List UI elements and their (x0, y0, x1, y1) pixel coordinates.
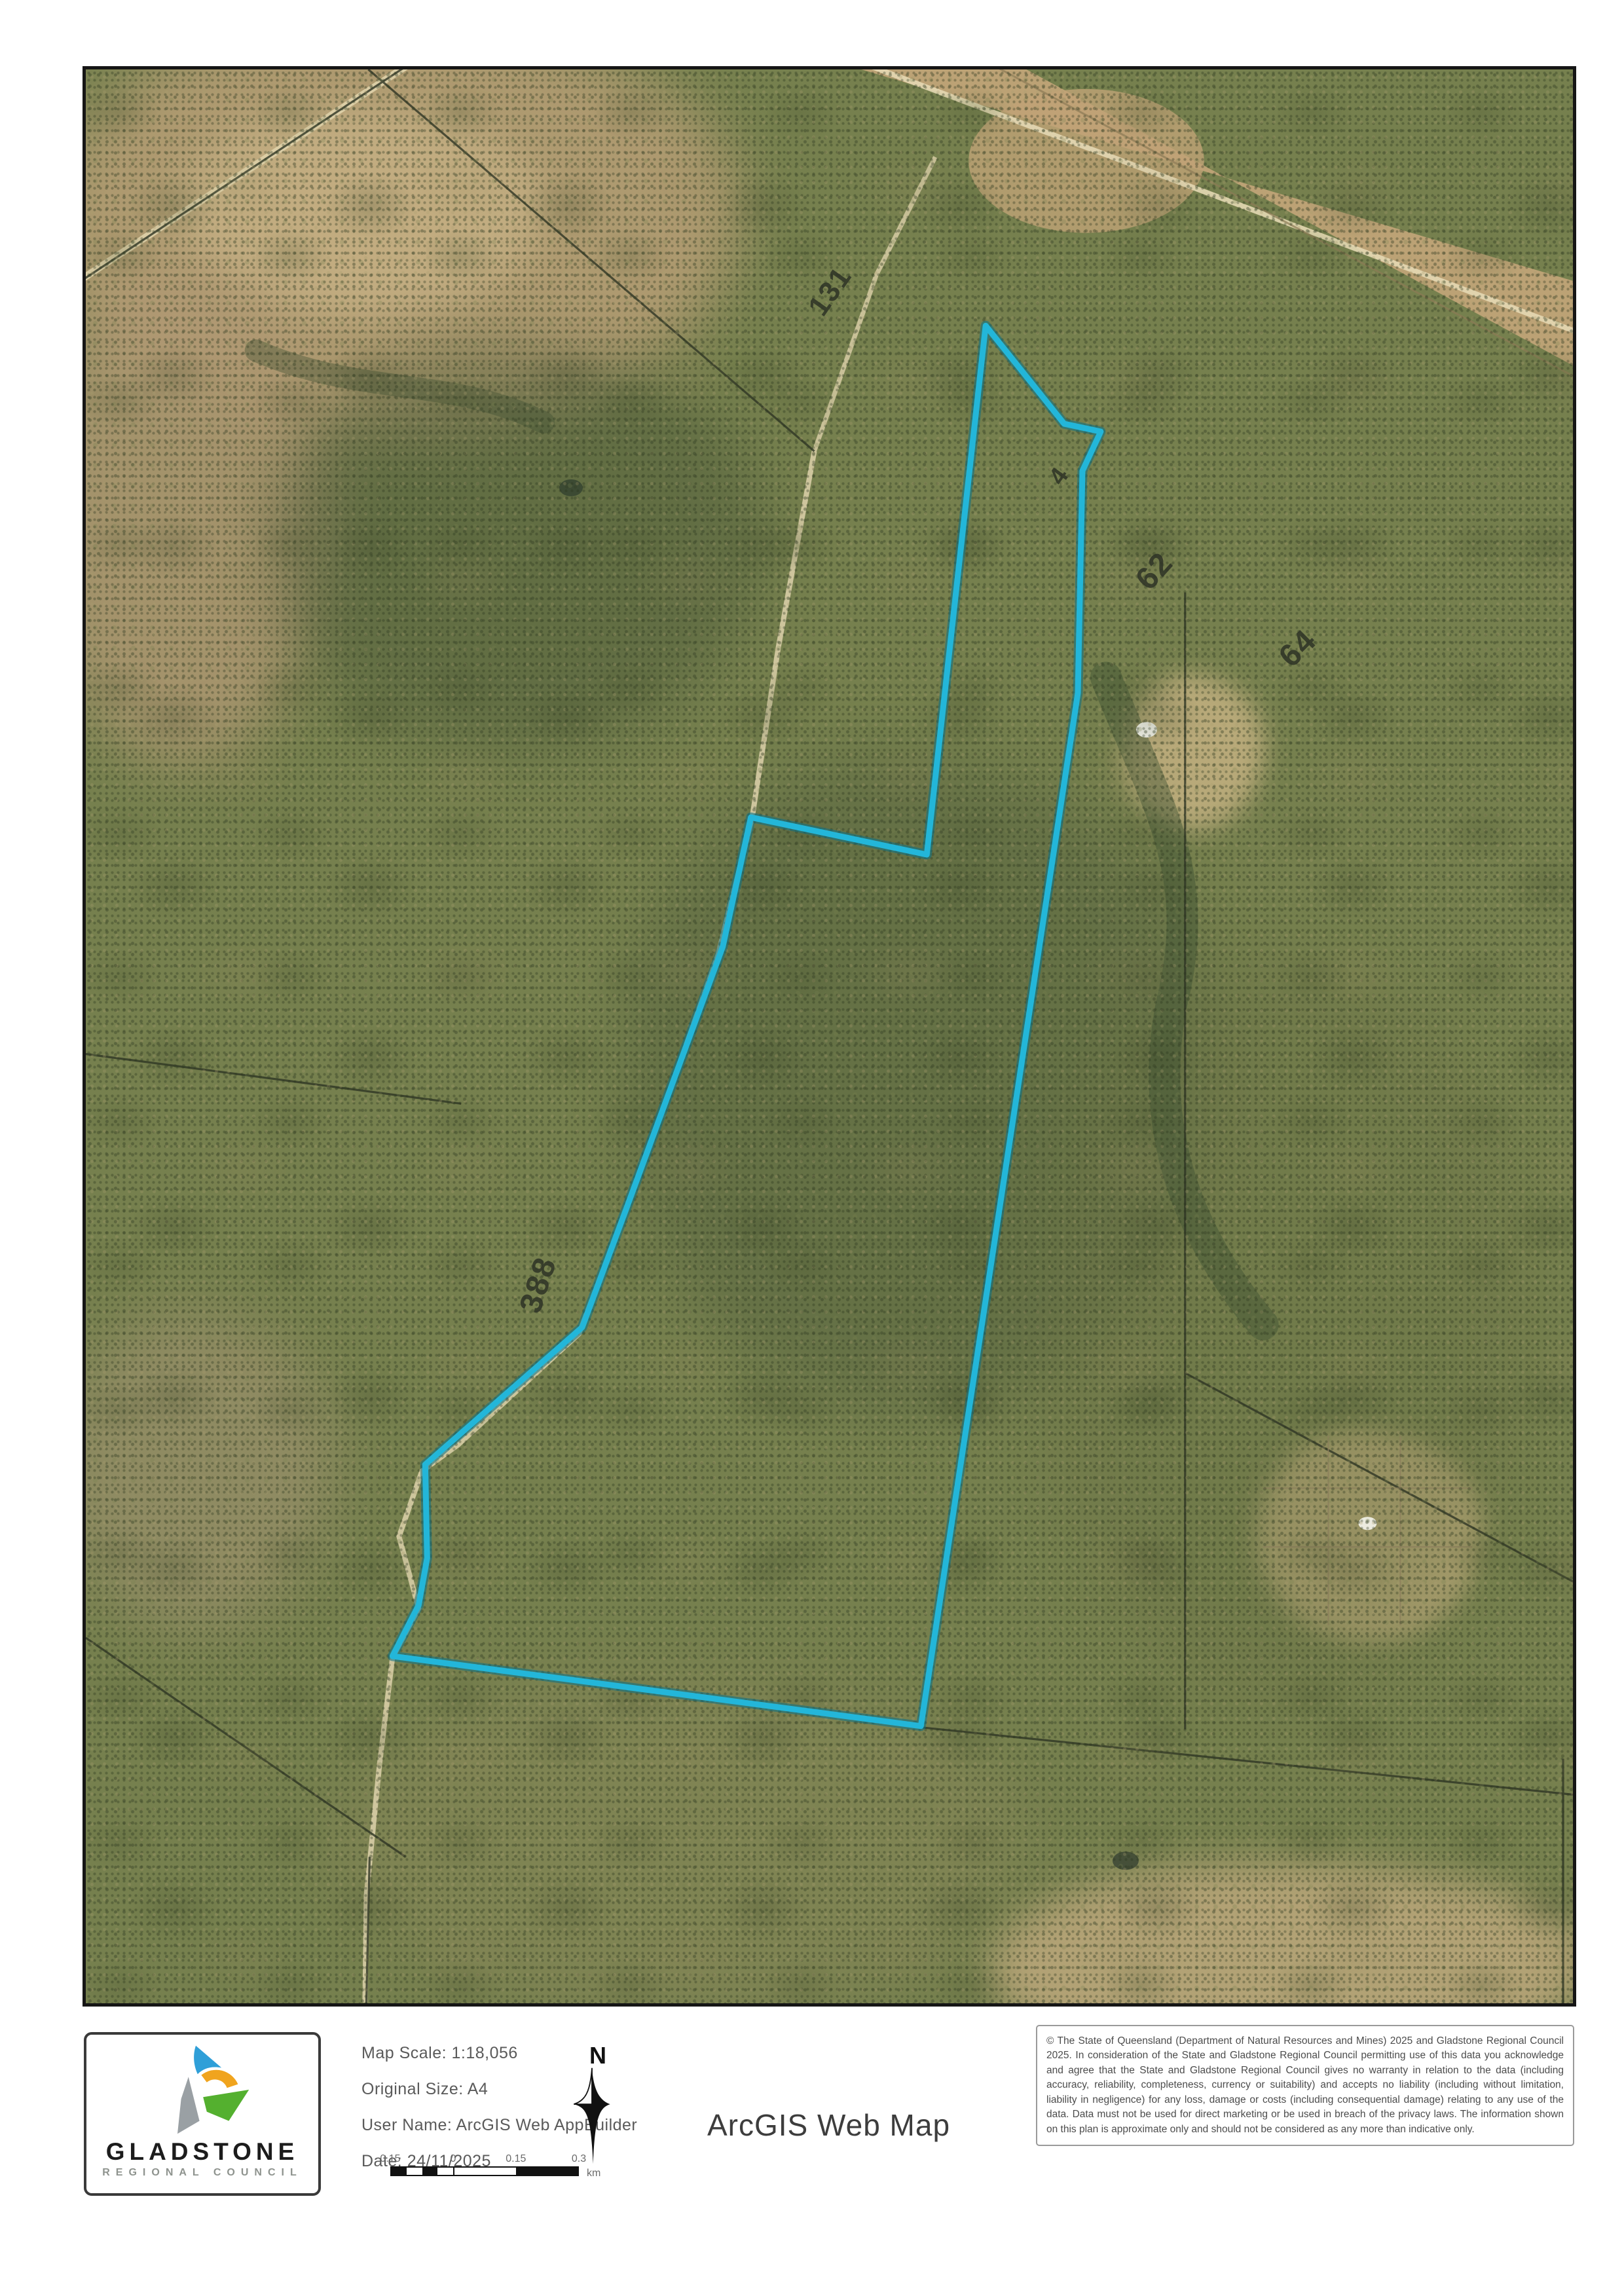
scale-bar-segments (390, 2166, 579, 2176)
council-logo-box: GLADSTONE REGIONAL COUNCIL (84, 2032, 321, 2196)
north-arrow: N (568, 2042, 627, 2165)
parcel-label-4: 4 (1044, 462, 1075, 491)
scale-bar-unit: km (587, 2168, 600, 2179)
logo-yellow-arc (201, 2070, 238, 2088)
scanned-map-page: 13146264388110 GLADSTONE REGIONAL COUNCI… (0, 0, 1624, 2296)
parcel-label-110: 110 (1567, 593, 1576, 658)
parcel-label-62: 62 (1128, 545, 1180, 597)
scale-label-1: 0 (450, 2153, 456, 2165)
scale-label-3: 0.3 (572, 2153, 586, 2165)
scale-label-0: 0.15 (380, 2153, 400, 2165)
logo-name: GLADSTONE (86, 2138, 318, 2166)
map-frame: 13146264388110 (83, 66, 1576, 2007)
parcel-labels-layer: 13146264388110 (86, 69, 1573, 2003)
disclaimer-box: © The State of Queensland (Department of… (1036, 2025, 1574, 2146)
scale-label-2: 0.15 (506, 2153, 526, 2165)
parcel-label-131: 131 (802, 261, 859, 322)
north-label: N (568, 2042, 627, 2069)
logo-subtitle: REGIONAL COUNCIL (86, 2167, 318, 2179)
logo-gray-arrow (177, 2077, 200, 2134)
scale-bar-labels: 0.15 0 0.15 0.3 (390, 2153, 579, 2166)
gladstone-logo-icon (149, 2044, 261, 2136)
north-arrow-icon (568, 2067, 616, 2165)
logo-green-arrow (203, 2090, 249, 2121)
logo-blue-arrow (194, 2046, 221, 2074)
parcel-label-388: 388 (513, 1253, 564, 1318)
scale-bar: 0.15 0 0.15 0.3 km (390, 2153, 579, 2176)
map-title: ArcGIS Web Map (707, 2107, 950, 2143)
parcel-label-64: 64 (1272, 622, 1323, 674)
